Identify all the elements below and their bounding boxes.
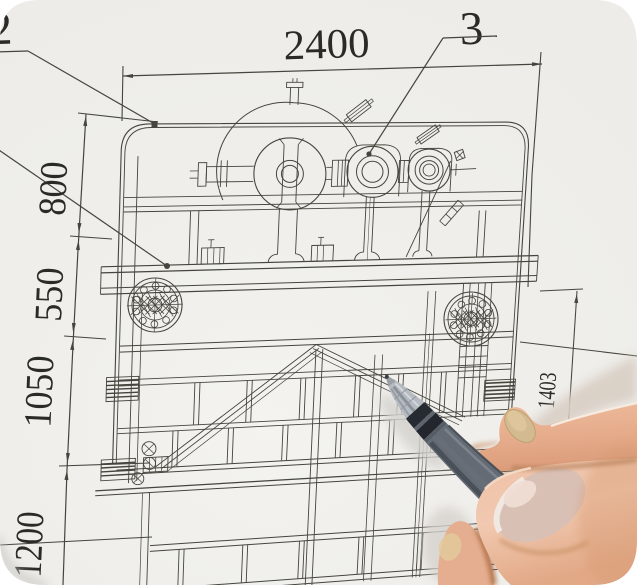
svg-text:550: 550 [27,267,72,323]
svg-text:3: 3 [459,3,484,56]
svg-text:800: 800 [31,161,76,217]
svg-text:1050: 1050 [16,355,62,429]
svg-text:2400: 2400 [283,21,370,70]
